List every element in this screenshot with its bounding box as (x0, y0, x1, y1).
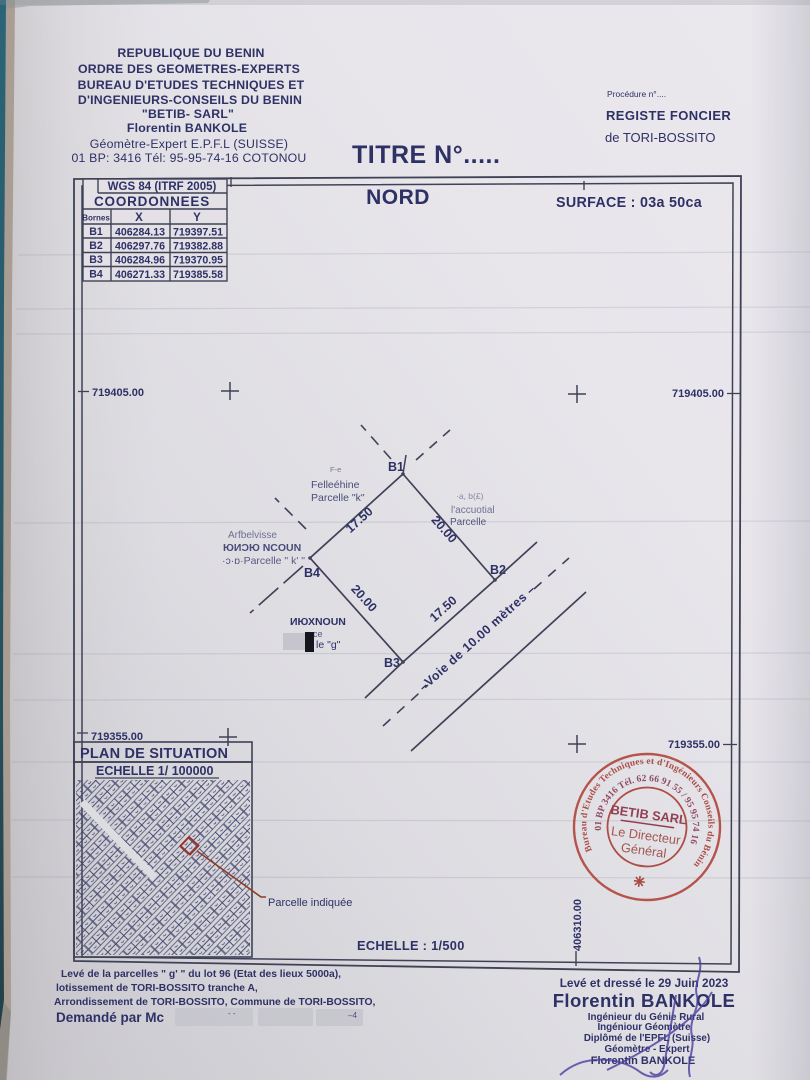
svg-text:–4: –4 (348, 1011, 357, 1020)
svg-text:·a, b(£): ·a, b(£) (456, 491, 484, 501)
svg-text:B2: B2 (89, 240, 103, 252)
svg-text:Florentin BANKOLE: Florentin BANKOLE (553, 990, 736, 1011)
svg-text:Demandé par Mc: Demandé par Mc (56, 1010, 165, 1025)
svg-text:WGS 84 (ITRF 2005): WGS 84 (ITRF 2005) (108, 181, 217, 193)
svg-text:01 BP: 3416 Tél: 95-95-74-16 C: 01 BP: 3416 Tél: 95-95-74-16 COTONOU (71, 151, 306, 165)
svg-text:Florentin BANKOLE: Florentin BANKOLE (127, 121, 247, 135)
svg-text:l'accuotial: l'accuotial (451, 505, 495, 516)
svg-text:Parcelle "k": Parcelle "k" (311, 492, 365, 504)
svg-text:719405.00: 719405.00 (92, 387, 144, 399)
svg-text:NORD: NORD (366, 186, 430, 209)
svg-text:ЮИϽЮ NCOUN: ЮИϽЮ NCOUN (223, 542, 301, 554)
svg-text:B4: B4 (89, 269, 103, 281)
svg-text:406284.13: 406284.13 (115, 227, 165, 239)
svg-text:ECHELLE 1/ 100000: ECHELLE 1/ 100000 (96, 764, 213, 778)
svg-text:Parcelle indiquée: Parcelle indiquée (268, 897, 352, 909)
svg-text:719397.51: 719397.51 (173, 227, 223, 239)
svg-text:B1: B1 (388, 460, 404, 474)
svg-text:Florentin BANKOLE: Florentin BANKOLE (591, 1055, 696, 1067)
svg-text:ORDRE DES GEOMETRES-EXPERTS: ORDRE DES GEOMETRES-EXPERTS (78, 62, 300, 76)
svg-text:ИЮХNOUN: ИЮХNOUN (290, 616, 346, 628)
svg-text:Y: Y (193, 212, 201, 224)
svg-text:D'INGENIEURS-CONSEILS DU BENIN: D'INGENIEURS-CONSEILS DU BENIN (78, 93, 302, 107)
svg-text:406297.76: 406297.76 (115, 241, 165, 253)
svg-text:Felleéhine: Felleéhine (311, 479, 360, 491)
svg-text:B1: B1 (89, 226, 103, 238)
svg-text:B2: B2 (490, 563, 506, 577)
svg-text:ECHELLE : 1/500: ECHELLE : 1/500 (357, 938, 465, 953)
svg-text:PLAN DE SITUATION: PLAN DE SITUATION (80, 746, 228, 762)
svg-text:"BETIB- SARL": "BETIB- SARL" (142, 107, 234, 121)
svg-text:Arfbelvisse: Arfbelvisse (228, 530, 277, 541)
svg-text:BUREAU D'ETUDES TECHNIQUES ET: BUREAU D'ETUDES TECHNIQUES ET (78, 78, 305, 92)
svg-text:REPUBLIQUE DU BENIN: REPUBLIQUE DU BENIN (117, 46, 264, 60)
svg-text:719405.00: 719405.00 (672, 388, 724, 400)
svg-text:B4: B4 (304, 566, 320, 580)
svg-text:Procédure n°....: Procédure n°.... (607, 89, 666, 99)
svg-text:F-e: F-e (330, 465, 341, 474)
svg-text:406284.96: 406284.96 (115, 255, 165, 267)
svg-text:Géomètre - Expert: Géomètre - Expert (605, 1044, 691, 1055)
svg-text:719385.58: 719385.58 (173, 269, 223, 281)
svg-text:B3: B3 (89, 254, 103, 266)
svg-text:TITRE N°.....: TITRE N°..... (352, 141, 500, 169)
svg-text:- -: - - (228, 1009, 236, 1018)
svg-text:REGISTE FONCIER: REGISTE FONCIER (606, 108, 731, 123)
svg-text:406310.00: 406310.00 (572, 899, 584, 951)
svg-text:719382.88: 719382.88 (173, 241, 223, 253)
svg-text:lotissement de TORI-BOSSITO tr: lotissement de TORI-BOSSITO tranche A, (56, 983, 258, 994)
svg-text:COORDONNEES: COORDONNEES (94, 194, 210, 209)
svg-text:ce: ce (313, 629, 323, 639)
svg-text:719355.00: 719355.00 (668, 739, 720, 751)
svg-text:Géomètre-Expert E.P.F.L (SUISS: Géomètre-Expert E.P.F.L (SUISSE) (90, 137, 288, 151)
svg-text:·ɔ·ɒ·Parcelle " k' ": ·ɔ·ɒ·Parcelle " k' " (222, 555, 305, 567)
svg-text:Parcelle: Parcelle (450, 517, 487, 528)
svg-text:Levé de la parcelles " g' " d: Levé de la parcelles " g' " du lot 96 (E… (61, 969, 341, 980)
svg-text:de TORI-BOSSITO: de TORI-BOSSITO (605, 130, 716, 145)
svg-text:406271.33: 406271.33 (115, 269, 165, 281)
svg-text:Bornes: Bornes (82, 214, 110, 223)
svg-text:X: X (135, 212, 143, 224)
svg-text:719370.95: 719370.95 (173, 255, 223, 267)
svg-text:Arrondissement de TORI-BOSSITO: Arrondissement de TORI-BOSSITO, Commune … (54, 997, 375, 1008)
svg-text:le "g": le "g" (316, 639, 341, 651)
svg-text:Levé et dressé le 29 Juin 2023: Levé et dressé le 29 Juin 2023 (560, 976, 729, 990)
svg-text:SURFACE : 03a 50ca: SURFACE : 03a 50ca (556, 195, 703, 211)
